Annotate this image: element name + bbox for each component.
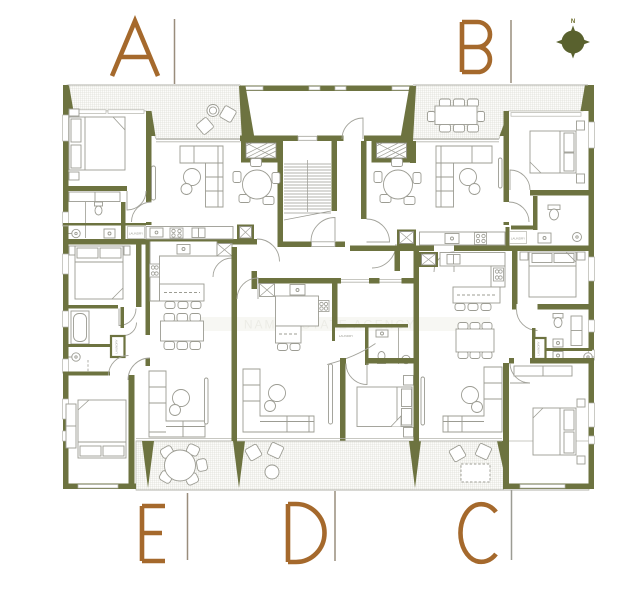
svg-text:LAUNDRY: LAUNDRY (537, 341, 541, 355)
svg-text:LAUNDRY: LAUNDRY (339, 334, 353, 338)
svg-text:N: N (571, 19, 575, 25)
svg-text:LAUNDRY: LAUNDRY (115, 339, 119, 353)
svg-text:LAUNDRY: LAUNDRY (129, 232, 143, 236)
svg-text:LAUNDRY: LAUNDRY (511, 237, 525, 241)
